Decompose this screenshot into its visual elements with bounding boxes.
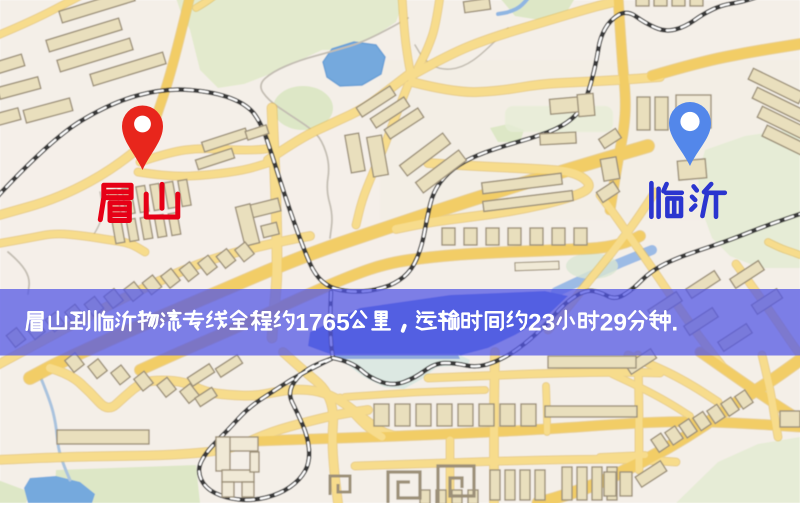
svg-text:23: 23 <box>528 310 555 337</box>
svg-text:29: 29 <box>600 310 627 337</box>
svg-text:.: . <box>671 310 678 337</box>
svg-text:1765: 1765 <box>295 310 350 337</box>
